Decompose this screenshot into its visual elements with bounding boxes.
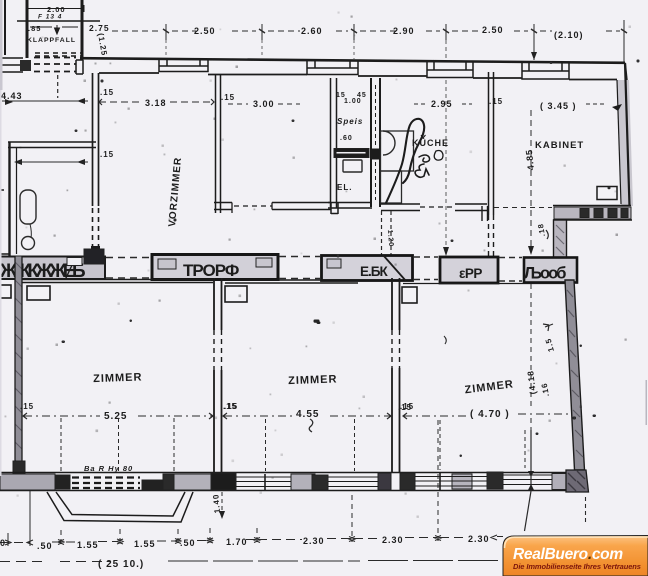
- svg-text:2.75: 2.75: [89, 23, 110, 33]
- svg-text:4.55: 4.55: [296, 409, 319, 420]
- svg-text:2.30: 2.30: [468, 534, 490, 544]
- svg-text:KABINET: KABINET: [535, 140, 584, 151]
- svg-text:1.55: 1.55: [77, 540, 99, 550]
- svg-text:KÜCHE: KÜCHE: [412, 138, 449, 148]
- svg-text:Љοοб: Љοοб: [524, 265, 566, 283]
- svg-text:ZIMMER: ZIMMER: [93, 371, 143, 385]
- svg-text:F 13 4: F 13 4: [38, 14, 62, 21]
- svg-text:(2.10): (2.10): [554, 30, 584, 40]
- svg-text:( 3.45 ): ( 3.45 ): [540, 101, 577, 111]
- svg-text:Speis: Speis: [337, 117, 363, 126]
- svg-text:.15: .15: [221, 93, 235, 102]
- svg-text:.50: .50: [37, 541, 53, 551]
- svg-text:2.50: 2.50: [482, 25, 504, 35]
- svg-text:5.25: 5.25: [104, 411, 127, 422]
- svg-text:1.70: 1.70: [226, 537, 248, 547]
- svg-text:4.43: 4.43: [1, 91, 23, 101]
- svg-text:2.90: 2.90: [393, 26, 415, 36]
- svg-text:.15: .15: [224, 402, 238, 411]
- svg-text:EL.: EL.: [337, 183, 352, 192]
- svg-text:3.18: 3.18: [145, 98, 167, 108]
- svg-text:.15: .15: [489, 97, 503, 106]
- svg-text:Е.БК: Е.БК: [360, 264, 388, 279]
- svg-text:ZIMMER: ZIMMER: [288, 373, 338, 387]
- svg-text:.15: .15: [100, 88, 114, 97]
- svg-text:2.95: 2.95: [431, 99, 453, 109]
- svg-text:.15: .15: [100, 150, 114, 159]
- svg-text:Die Immobilienseite Ihres Vert: Die Immobilienseite Ihres Vertrauens: [513, 562, 641, 571]
- svg-text:.15: .15: [20, 402, 34, 411]
- svg-text:2.50: 2.50: [194, 26, 216, 36]
- svg-text:1.55: 1.55: [134, 539, 156, 549]
- svg-text:1.00: 1.00: [344, 98, 362, 105]
- svg-text:εРР: εРР: [459, 266, 482, 281]
- svg-text:Ba R Hy 80: Ba R Hy 80: [84, 464, 133, 473]
- svg-text:( 4.70 ): ( 4.70 ): [470, 409, 510, 420]
- svg-text:.15: .15: [398, 403, 412, 412]
- svg-text:2.30: 2.30: [303, 536, 325, 546]
- svg-text:.50: .50: [180, 538, 196, 548]
- svg-text:0: 0: [0, 538, 6, 548]
- svg-text:( 25 10.): ( 25 10.): [98, 559, 144, 570]
- svg-text:1.40: 1.40: [211, 493, 222, 513]
- svg-text:RealBuero.com: RealBuero.com: [513, 546, 623, 563]
- svg-text:2.60: 2.60: [301, 26, 323, 36]
- svg-text:.85: .85: [28, 24, 41, 33]
- svg-text:ТРОРФ: ТРОРФ: [183, 261, 239, 280]
- svg-text:2.30: 2.30: [382, 535, 404, 545]
- svg-text:.60: .60: [340, 135, 353, 142]
- svg-text:45: 45: [357, 92, 367, 99]
- svg-text:3.00: 3.00: [253, 99, 275, 109]
- svg-text:KLAPPFALL: KLAPPFALL: [27, 37, 76, 44]
